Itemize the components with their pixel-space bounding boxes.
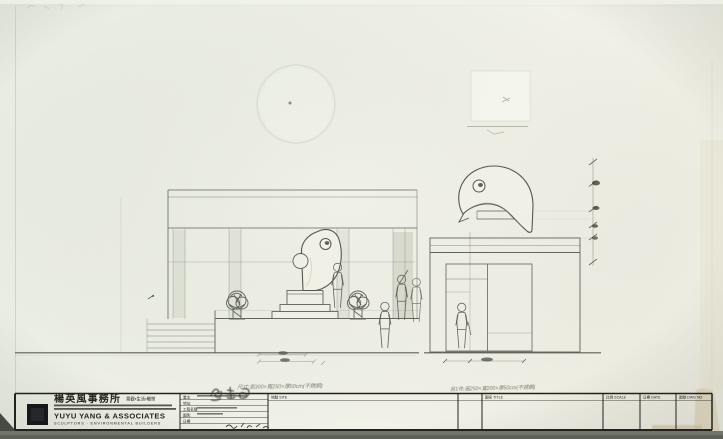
info-owner-label: 業主:	[183, 394, 191, 399]
paper-background	[0, 0, 723, 439]
sheet-svg: 尺寸:高300×寬250×厚50cm(不銹鋼) 另1件:高250×寬200×厚5…	[0, 0, 723, 439]
cell-dwgno-label: 圖號 DWG NO	[679, 394, 703, 399]
cell-site-label: 地點 SITE	[271, 394, 288, 399]
cell-title-label: 圖名 TITLE	[485, 394, 504, 399]
drawing-sheet: 尺寸:高300×寬250×厚50cm(不銹鋼) 另1件:高250×寬200×厚5…	[0, 0, 723, 439]
stain-circle	[257, 65, 335, 143]
cell-scale-label: 比例 SCALE	[606, 394, 627, 399]
info-project-label: 工程名稱:	[183, 406, 198, 411]
info-address-label: 地址:	[183, 400, 191, 405]
firm-sub-en: SCULPTORS · ENVIRONMENTAL BUILDERS	[54, 422, 161, 426]
cell-date-label: 日期 DATE	[643, 394, 661, 399]
edge-stain	[700, 140, 723, 390]
company-stamp	[27, 404, 48, 425]
doorway-shade	[393, 232, 413, 318]
info-type-label: 圖別:	[183, 412, 191, 417]
firm-name-en: YUYU YANG & ASSOCIATES	[54, 412, 165, 421]
firm-tagline-zh: 景觀•生活•雕塑	[126, 396, 156, 403]
info-date-label: 日期:	[183, 418, 191, 423]
sculpture-notch	[293, 254, 308, 269]
firm-name-zh: 楊英風事務所	[54, 392, 121, 405]
